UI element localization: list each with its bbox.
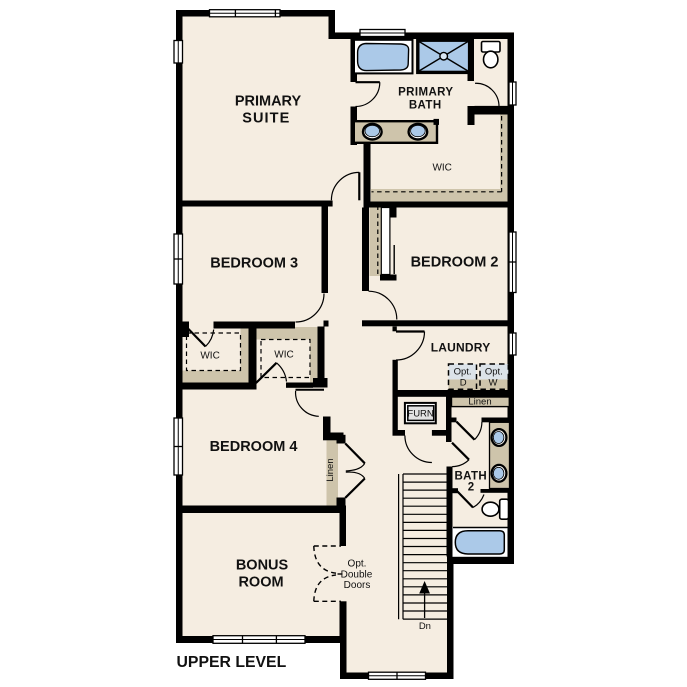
svg-text:D: D bbox=[460, 377, 467, 388]
svg-text:LAUNDRY: LAUNDRY bbox=[431, 340, 491, 354]
svg-text:Doors: Doors bbox=[344, 580, 371, 591]
svg-text:WIC: WIC bbox=[432, 163, 451, 174]
svg-text:W: W bbox=[489, 377, 498, 388]
svg-text:BONUS: BONUS bbox=[236, 557, 289, 573]
svg-text:Opt.: Opt. bbox=[454, 367, 472, 378]
svg-text:SUITE: SUITE bbox=[242, 111, 290, 127]
svg-text:PRIMARY: PRIMARY bbox=[398, 86, 453, 98]
svg-text:Linen: Linen bbox=[325, 458, 336, 481]
svg-text:FURN: FURN bbox=[407, 408, 434, 419]
svg-text:WIC: WIC bbox=[200, 351, 219, 362]
svg-text:Double: Double bbox=[341, 570, 373, 581]
svg-text:WIC: WIC bbox=[274, 349, 293, 360]
svg-text:PRIMARY: PRIMARY bbox=[235, 94, 302, 110]
svg-text:BEDROOM 4: BEDROOM 4 bbox=[210, 439, 298, 455]
svg-text:Opt.: Opt. bbox=[485, 367, 503, 378]
svg-text:BEDROOM 2: BEDROOM 2 bbox=[411, 255, 499, 271]
svg-text:UPPER LEVEL: UPPER LEVEL bbox=[177, 654, 287, 671]
svg-text:BATH: BATH bbox=[409, 99, 442, 111]
svg-text:ROOM: ROOM bbox=[238, 575, 283, 591]
svg-text:BEDROOM 3: BEDROOM 3 bbox=[210, 255, 298, 271]
svg-text:Linen: Linen bbox=[468, 397, 491, 408]
svg-text:2: 2 bbox=[468, 481, 475, 493]
svg-text:Dn: Dn bbox=[419, 621, 431, 632]
svg-text:Opt.: Opt. bbox=[348, 558, 367, 569]
